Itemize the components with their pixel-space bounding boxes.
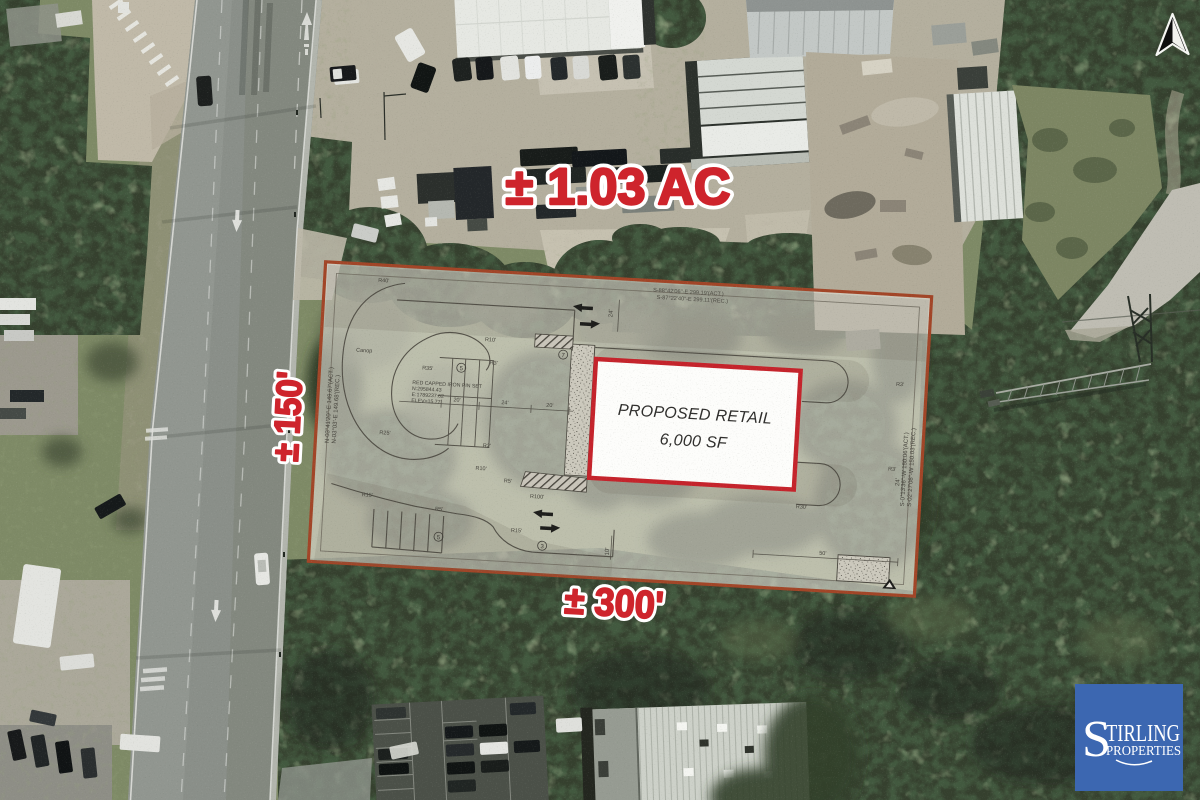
svg-text:± 1.03 AC: ± 1.03 AC [506, 158, 731, 215]
svg-text:± 300': ± 300' [563, 579, 664, 628]
svg-text:PROPERTIES: PROPERTIES [1106, 744, 1181, 759]
svg-text:± 150': ± 150' [265, 370, 311, 462]
